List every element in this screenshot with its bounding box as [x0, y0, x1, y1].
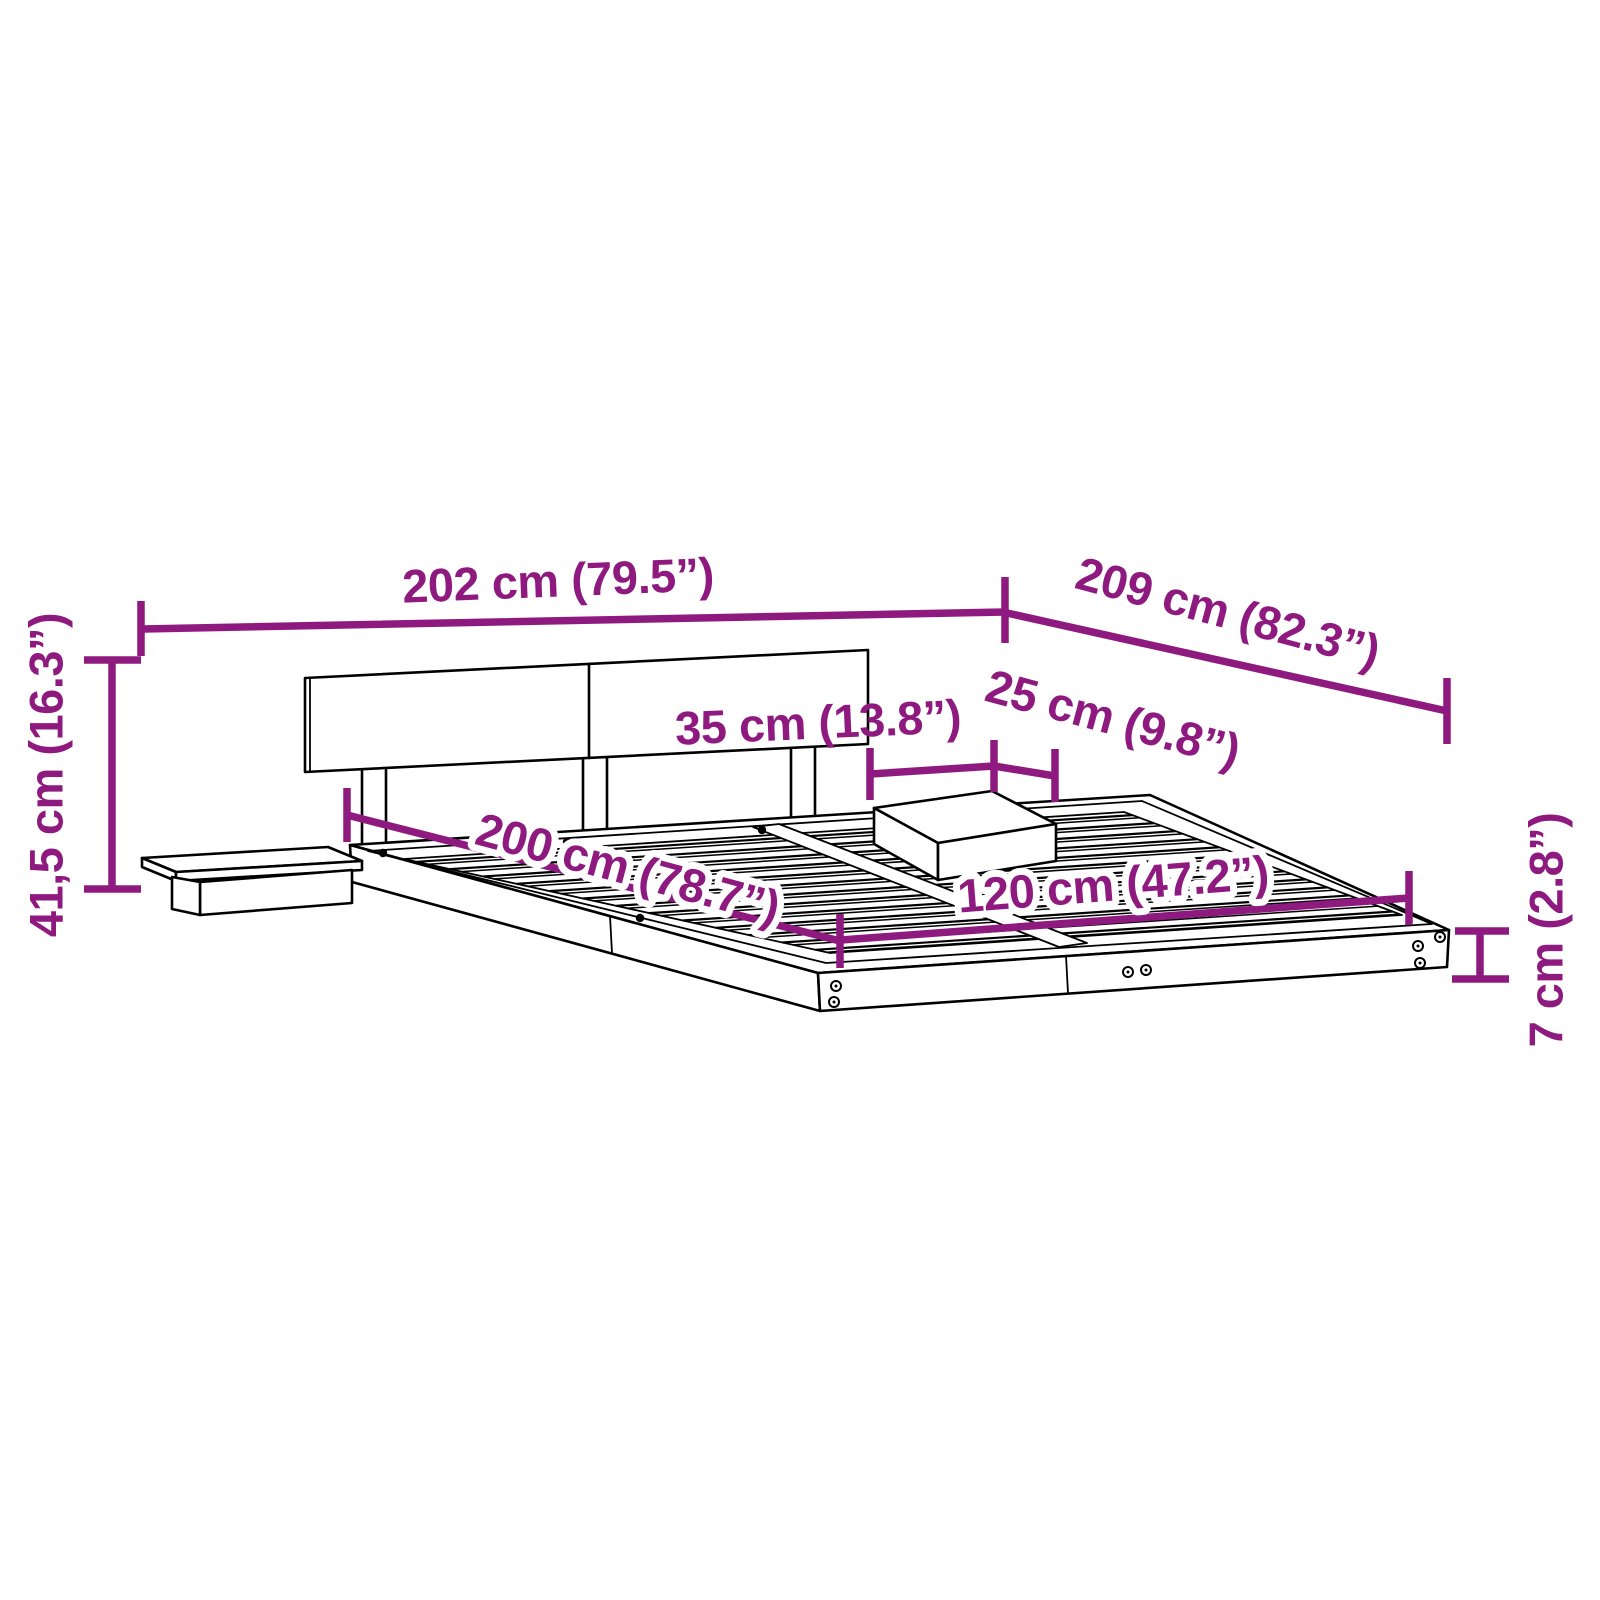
dimension-headboard-height-label: 41,5 cm (16.3”) — [20, 613, 73, 937]
left-side-table — [142, 847, 362, 915]
bed-dimension-diagram: 202 cm (79.5”) 209 cm (82.3”) 41,5 cm (1… — [0, 0, 1600, 1600]
dimension-platform-height-label: 7 cm (2.8”) — [1520, 813, 1573, 1048]
dimension-total-width: 202 cm (79.5”) — [141, 547, 1005, 656]
dimension-side-table-depth: 25 cm (9.8”) — [980, 659, 1245, 802]
dimension-side-table-depth-label: 25 cm (9.8”) — [980, 659, 1245, 778]
dimension-side-table-width-label: 35 cm (13.8”) — [674, 689, 962, 754]
dimension-total-depth-label: 209 cm (82.3”) — [1071, 546, 1386, 678]
dimension-platform-height: 7 cm (2.8”) — [1452, 813, 1573, 1048]
diagram-canvas: 202 cm (79.5”) 209 cm (82.3”) 41,5 cm (1… — [0, 0, 1600, 1600]
dimension-side-table-width: 35 cm (13.8”) — [674, 689, 994, 800]
dimension-total-width-label: 202 cm (79.5”) — [401, 547, 715, 612]
dimension-headboard-height: 41,5 cm (16.3”) — [20, 613, 142, 937]
